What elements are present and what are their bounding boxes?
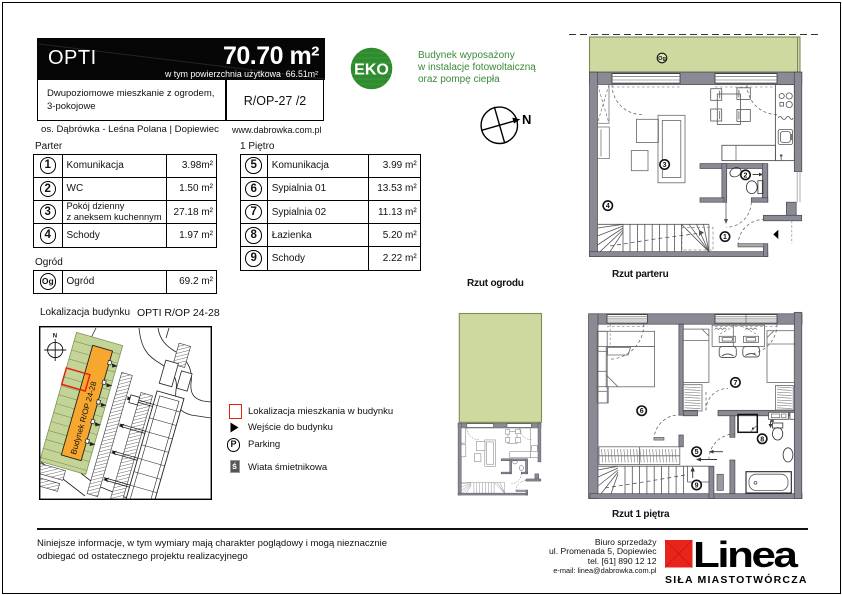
svg-text:EKO: EKO [354,61,389,78]
svg-text:2: 2 [744,172,748,179]
svg-text:1: 1 [723,234,727,241]
svg-text:8: 8 [760,436,764,443]
svg-text:5: 5 [695,449,699,456]
svg-text:SIŁA MIASTOTWÓRCZA: SIŁA MIASTOTWÓRCZA [665,573,807,585]
svg-text:3: 3 [663,162,667,169]
svg-text:N: N [53,334,57,340]
svg-text:6: 6 [640,408,644,415]
svg-text:7: 7 [733,380,737,387]
svg-text:Linea: Linea [693,537,799,575]
svg-text:Og: Og [658,56,666,62]
svg-text:4: 4 [606,203,610,210]
svg-text:9: 9 [695,483,699,490]
svg-text:N: N [522,112,531,127]
